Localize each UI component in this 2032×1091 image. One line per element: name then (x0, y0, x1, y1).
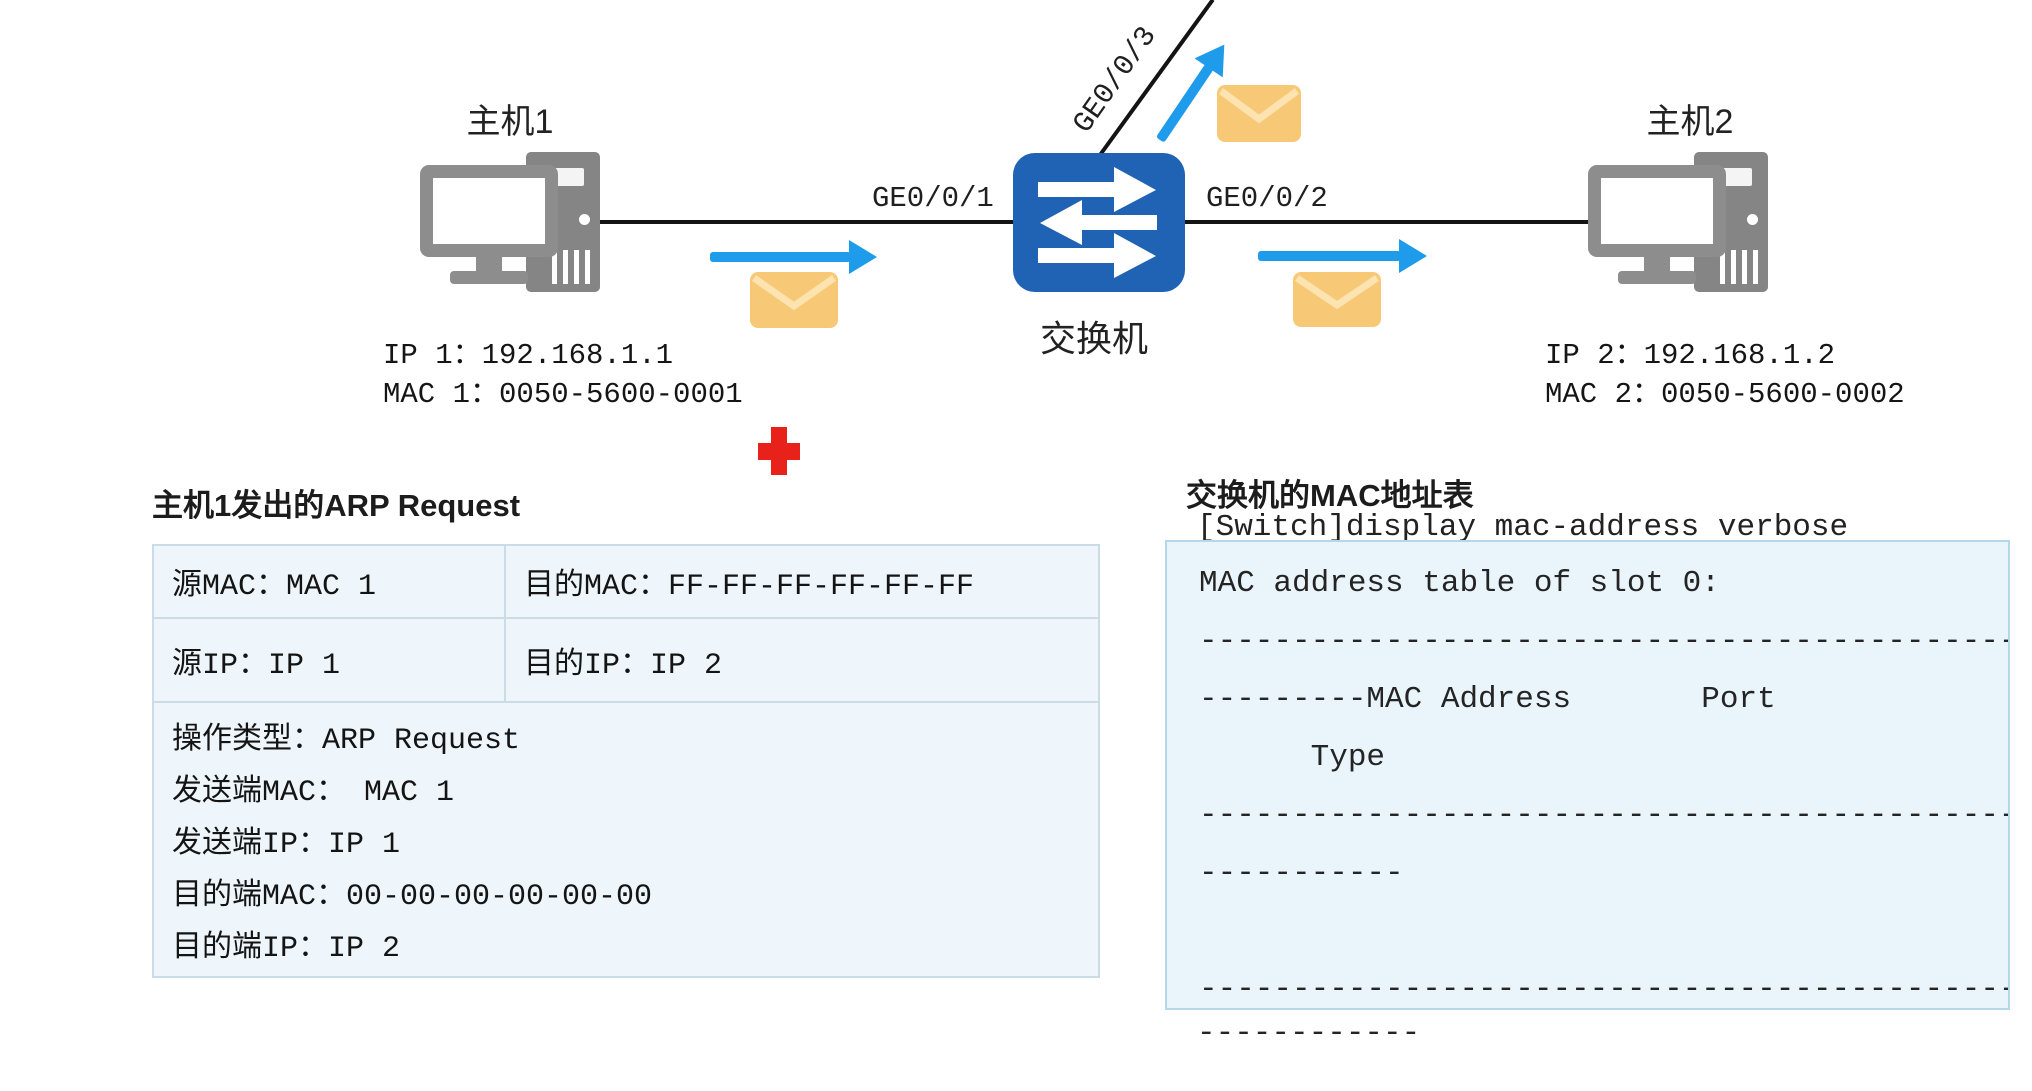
arp-detail-line: 目的端MAC：00-00-00-00-00-00 (172, 871, 1098, 923)
cross-horizontal-bar (758, 443, 800, 460)
mac-table-overflow-dashes: ------------ (1197, 1016, 1420, 1051)
tower-vent (563, 250, 568, 284)
switch-icon (1013, 153, 1185, 292)
arp-dst-ip-cell: 目的IP：IP 2 (506, 619, 1098, 701)
link-host1-switch (598, 220, 1015, 224)
arp-detail-block: 操作类型：ARP Request 发送端MAC： MAC 1 发送端IP：IP … (154, 703, 1098, 975)
tower-vent (574, 250, 579, 284)
terminal-line: Type (1199, 729, 2008, 787)
tower-vent (1742, 250, 1747, 284)
port-label-ge0-0-2: GE0/0/2 (1206, 182, 1328, 215)
host2-ip: IP 2：192.168.1.2 (1545, 330, 1835, 372)
tower-vent (1731, 250, 1736, 284)
terminal-line: ----------------------------------------… (1199, 787, 2008, 845)
host1-monitor-base (450, 271, 528, 284)
arrow-shaft (1258, 251, 1401, 261)
envelope-icon-top (1217, 85, 1301, 142)
arp-detail-line: 发送端MAC： MAC 1 (172, 767, 1098, 819)
host2-monitor-icon (1588, 165, 1726, 257)
switch-label: 交换机 (1010, 310, 1178, 362)
terminal-line: MAC address table of slot 0: (1199, 555, 2008, 613)
link-switch-host2 (1183, 220, 1593, 224)
host2-label: 主机2 (1608, 94, 1772, 143)
host1-label: 主机1 (428, 94, 592, 143)
arp-request-title: 主机1发出的ARP Request (152, 480, 520, 525)
arp-table-row: 源IP：IP 1 目的IP：IP 2 (154, 619, 1098, 703)
host1-mac: MAC 1：0050-5600-0001 (383, 369, 743, 411)
mac-table-terminal-box: MAC address table of slot 0: -----------… (1165, 540, 2010, 1010)
arrow-head (849, 240, 877, 274)
host2-monitor-base (1618, 271, 1696, 284)
arrow-shaft (710, 252, 851, 262)
arp-detail-line: 操作类型：ARP Request (172, 715, 1098, 767)
network-diagram-canvas: 主机1 IP 1：192.168.1.1 MAC 1：0050-5600-000… (0, 0, 2032, 1091)
tower-vent (1753, 250, 1758, 284)
envelope-icon-left (750, 272, 838, 328)
host1-monitor-icon (420, 165, 558, 257)
arrow-shaft (1156, 63, 1214, 142)
arrow-head (1399, 239, 1427, 273)
arp-detail-line: 目的端IP：IP 2 (172, 923, 1098, 975)
envelope-icon-right (1293, 272, 1381, 327)
arp-src-mac-cell: 源MAC：MAC 1 (154, 546, 506, 617)
arp-src-ip-cell: 源IP：IP 1 (154, 619, 506, 701)
terminal-line (1199, 903, 2008, 961)
switch-arrows-icon (1013, 153, 1185, 292)
arp-table-row: 源MAC：MAC 1 目的MAC：FF-FF-FF-FF-FF-FF (154, 546, 1098, 619)
terminal-line: ----------- (1199, 845, 2008, 903)
arp-request-table: 源MAC：MAC 1 目的MAC：FF-FF-FF-FF-FF-FF 源IP：I… (152, 544, 1100, 978)
arp-dst-mac-cell: 目的MAC：FF-FF-FF-FF-FF-FF (506, 546, 1098, 617)
red-cross-icon (758, 427, 800, 475)
host2-mac: MAC 2：0050-5600-0002 (1545, 369, 1905, 411)
terminal-line: ----------------------------------------… (1199, 613, 2008, 671)
terminal-line: ----------------------------------------… (1199, 961, 2008, 1010)
port-label-ge0-0-1: GE0/0/1 (872, 182, 994, 215)
host1-ip: IP 1：192.168.1.1 (383, 330, 673, 372)
tower-power-dot (1747, 214, 1758, 225)
mac-table-title: 交换机的MAC地址表 (1186, 470, 1474, 515)
tower-power-dot (579, 214, 590, 225)
tower-vent (585, 250, 590, 284)
terminal-line: ---------MAC Address Port (1199, 671, 2008, 729)
arp-detail-line: 发送端IP：IP 1 (172, 819, 1098, 871)
